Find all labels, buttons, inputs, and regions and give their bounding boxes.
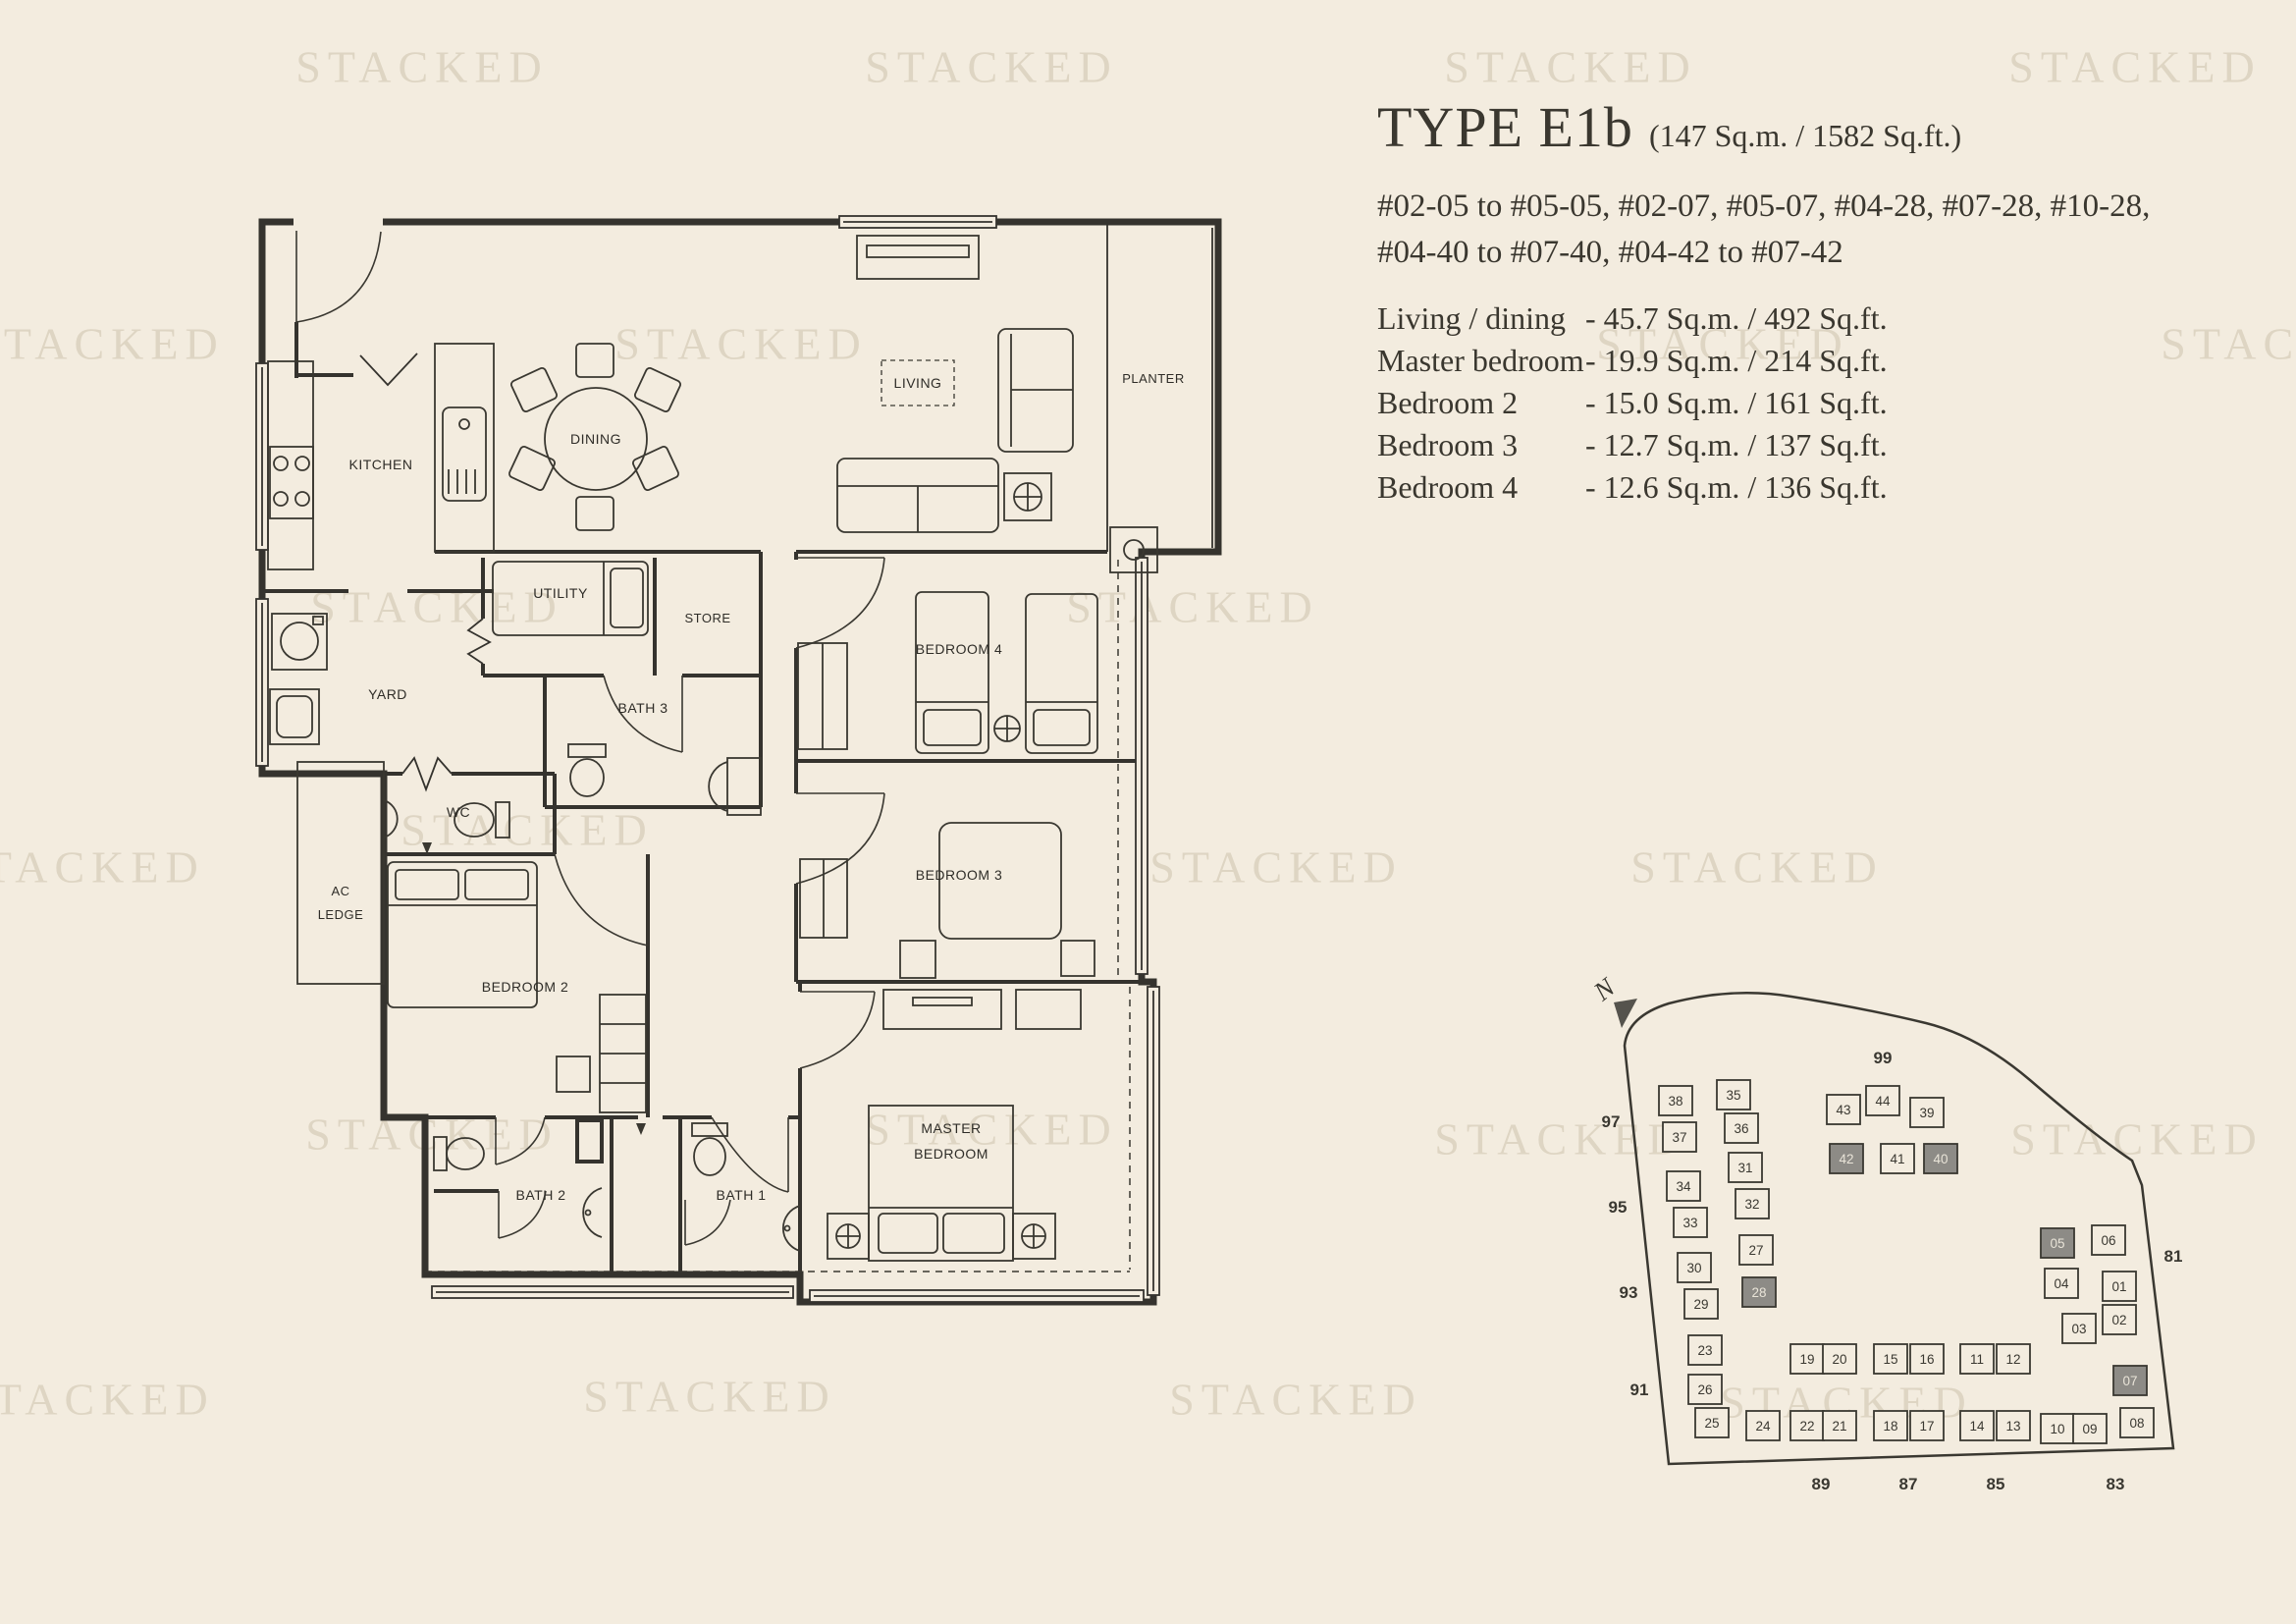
svg-text:30: 30 bbox=[1686, 1261, 1701, 1275]
street-number: 95 bbox=[1609, 1198, 1628, 1217]
watermark: STACKED bbox=[295, 41, 548, 93]
watermark: STACKED bbox=[1444, 41, 1696, 93]
area-value: - 12.6 Sq.m. / 136 Sq.ft. bbox=[1585, 466, 1888, 509]
room-label-master-2: BEDROOM bbox=[914, 1146, 988, 1162]
svg-text:21: 21 bbox=[1832, 1419, 1846, 1434]
area-value: - 45.7 Sq.m. / 492 Sq.ft. bbox=[1585, 298, 1888, 340]
site-map-building-04: 04 bbox=[2045, 1269, 2078, 1298]
site-map-building-34: 34 bbox=[1667, 1171, 1700, 1201]
area-value: - 19.9 Sq.m. / 214 Sq.ft. bbox=[1585, 340, 1888, 382]
room-label-dining: DINING bbox=[570, 431, 621, 447]
site-map-building-05: 05 bbox=[2041, 1228, 2074, 1258]
area-table: Living / dining - 45.7 Sq.m. / 492 Sq.ft… bbox=[1377, 298, 1888, 509]
room-label-planter: PLANTER bbox=[1122, 371, 1184, 386]
site-map-building-20: 20 bbox=[1823, 1344, 1856, 1374]
site-map-building-14: 14 bbox=[1960, 1411, 1994, 1440]
area-row: Bedroom 2 - 15.0 Sq.m. / 161 Sq.ft. bbox=[1377, 382, 1888, 424]
street-number: 91 bbox=[1630, 1380, 1649, 1399]
watermark: STACKED bbox=[1169, 1374, 1421, 1426]
street-number: 87 bbox=[1899, 1475, 1918, 1493]
area-label: Bedroom 2 bbox=[1377, 382, 1585, 424]
area-label: Bedroom 3 bbox=[1377, 424, 1585, 466]
area-value: - 12.7 Sq.m. / 137 Sq.ft. bbox=[1585, 424, 1888, 466]
site-map-building-06: 06 bbox=[2092, 1225, 2125, 1255]
site-map-building-03: 03 bbox=[2062, 1314, 2096, 1343]
area-row: Master bedroom - 19.9 Sq.m. / 214 Sq.ft. bbox=[1377, 340, 1888, 382]
watermark: STACKED bbox=[865, 41, 1117, 93]
site-map-building-09: 09 bbox=[2073, 1414, 2107, 1443]
site-map-building-43: 43 bbox=[1827, 1095, 1860, 1124]
site-map-building-25: 25 bbox=[1695, 1408, 1729, 1437]
floor-plan: KITCHEN DINING LIVING PLANTER UTILITY ST… bbox=[250, 206, 1242, 1326]
street-number: 93 bbox=[1620, 1283, 1638, 1302]
svg-text:15: 15 bbox=[1883, 1352, 1897, 1367]
living-furniture bbox=[837, 236, 1073, 532]
site-map-building-10: 10 bbox=[2041, 1414, 2074, 1443]
svg-text:25: 25 bbox=[1704, 1416, 1719, 1431]
site-map-building-16: 16 bbox=[1910, 1344, 1944, 1374]
site-map-building-30: 30 bbox=[1678, 1253, 1711, 1282]
svg-text:33: 33 bbox=[1682, 1216, 1697, 1230]
site-map-building-15: 15 bbox=[1874, 1344, 1907, 1374]
svg-text:02: 02 bbox=[2111, 1313, 2126, 1327]
area-label: Bedroom 4 bbox=[1377, 466, 1585, 509]
svg-text:20: 20 bbox=[1832, 1352, 1846, 1367]
watermark: STACKED bbox=[0, 1374, 215, 1426]
north-label: N bbox=[1587, 971, 1622, 1007]
svg-text:35: 35 bbox=[1726, 1088, 1740, 1103]
area-label: Master bedroom bbox=[1377, 340, 1585, 382]
site-map-building-13: 13 bbox=[1997, 1411, 2030, 1440]
svg-text:27: 27 bbox=[1748, 1243, 1763, 1258]
svg-text:22: 22 bbox=[1799, 1419, 1814, 1434]
site-map-building-18: 18 bbox=[1874, 1411, 1907, 1440]
site-map-building-37: 37 bbox=[1663, 1122, 1696, 1152]
page-title: TYPE E1b bbox=[1377, 95, 1633, 159]
area-row: Living / dining - 45.7 Sq.m. / 492 Sq.ft… bbox=[1377, 298, 1888, 340]
area-row: Bedroom 3 - 12.7 Sq.m. / 137 Sq.ft. bbox=[1377, 424, 1888, 466]
title-area: (147 Sq.m. / 1582 Sq.ft.) bbox=[1649, 118, 1961, 153]
site-buildings: 3835373634313332302729282326254344394241… bbox=[1659, 1080, 2154, 1443]
room-label-bedroom3: BEDROOM 3 bbox=[916, 867, 1003, 883]
svg-text:13: 13 bbox=[2005, 1419, 2020, 1434]
site-map-building-12: 12 bbox=[1997, 1344, 2030, 1374]
room-label-ac-ledge-1: AC bbox=[331, 884, 349, 898]
area-value: - 15.0 Sq.m. / 161 Sq.ft. bbox=[1585, 382, 1888, 424]
site-map-building-39: 39 bbox=[1910, 1098, 1944, 1127]
watermark: STACKED bbox=[1630, 841, 1883, 893]
room-label-master-1: MASTER bbox=[921, 1120, 981, 1136]
watermark: STACKED bbox=[2008, 41, 2261, 93]
svg-text:04: 04 bbox=[2054, 1276, 2069, 1291]
site-map-building-40: 40 bbox=[1924, 1144, 1957, 1173]
svg-text:08: 08 bbox=[2129, 1416, 2144, 1431]
site-map-building-44: 44 bbox=[1866, 1086, 1899, 1115]
svg-text:24: 24 bbox=[1755, 1419, 1771, 1434]
svg-text:18: 18 bbox=[1883, 1419, 1897, 1434]
room-label-kitchen: KITCHEN bbox=[349, 457, 413, 472]
svg-text:39: 39 bbox=[1919, 1106, 1934, 1120]
site-map-building-41: 41 bbox=[1881, 1144, 1914, 1173]
svg-text:32: 32 bbox=[1744, 1197, 1759, 1212]
svg-text:16: 16 bbox=[1919, 1352, 1934, 1367]
svg-text:11: 11 bbox=[1970, 1352, 1984, 1367]
svg-text:05: 05 bbox=[2050, 1236, 2064, 1251]
bath3-fixtures bbox=[568, 744, 761, 815]
area-label: Living / dining bbox=[1377, 298, 1585, 340]
site-map-building-11: 11 bbox=[1960, 1344, 1994, 1374]
svg-text:40: 40 bbox=[1933, 1152, 1948, 1166]
info-panel: TYPE E1b(147 Sq.m. / 1582 Sq.ft.) #02-05… bbox=[1377, 94, 2290, 509]
unit-list-line2: #04-40 to #07-40, #04-42 to #07-42 bbox=[1377, 230, 2290, 276]
street-number: 85 bbox=[1987, 1475, 2005, 1493]
room-label-ac-ledge-2: LEDGE bbox=[318, 907, 364, 922]
floor-plan-labels: KITCHEN DINING LIVING PLANTER UTILITY ST… bbox=[318, 371, 1185, 1203]
site-map: N 38353736343133323027292823262543443942… bbox=[1571, 957, 2296, 1566]
yard-fixtures bbox=[270, 614, 327, 744]
site-map-building-35: 35 bbox=[1717, 1080, 1750, 1110]
page: STACKEDSTACKEDSTACKEDSTACKEDSTACKEDSTACK… bbox=[0, 0, 2296, 1624]
svg-text:19: 19 bbox=[1799, 1352, 1814, 1367]
site-map-building-28: 28 bbox=[1742, 1277, 1776, 1307]
site-map-building-31: 31 bbox=[1729, 1153, 1762, 1182]
site-map-building-07: 07 bbox=[2113, 1366, 2147, 1395]
site-map-building-22: 22 bbox=[1790, 1411, 1824, 1440]
room-label-bath2: BATH 2 bbox=[516, 1187, 566, 1203]
svg-text:41: 41 bbox=[1890, 1152, 1904, 1166]
site-map-building-24: 24 bbox=[1746, 1411, 1780, 1440]
svg-text:34: 34 bbox=[1676, 1179, 1691, 1194]
svg-text:01: 01 bbox=[2111, 1279, 2126, 1294]
site-map-building-32: 32 bbox=[1735, 1189, 1769, 1218]
svg-text:12: 12 bbox=[2005, 1352, 2020, 1367]
svg-text:14: 14 bbox=[1969, 1419, 1985, 1434]
street-number: 81 bbox=[2164, 1247, 2183, 1266]
unit-list: #02-05 to #05-05, #02-07, #05-07, #04-28… bbox=[1377, 184, 2290, 276]
svg-text:26: 26 bbox=[1697, 1382, 1712, 1397]
svg-text:10: 10 bbox=[2050, 1422, 2064, 1436]
svg-text:42: 42 bbox=[1839, 1152, 1853, 1166]
site-map-building-26: 26 bbox=[1688, 1375, 1722, 1404]
room-label-wc: WC bbox=[447, 804, 470, 820]
room-label-bedroom4: BEDROOM 4 bbox=[916, 641, 1003, 657]
svg-text:17: 17 bbox=[1919, 1419, 1934, 1434]
room-label-bath1: BATH 1 bbox=[717, 1187, 767, 1203]
watermark: STACKED bbox=[0, 841, 205, 893]
bedroom3-furniture bbox=[800, 823, 1095, 978]
svg-text:38: 38 bbox=[1668, 1094, 1682, 1109]
svg-text:07: 07 bbox=[2122, 1374, 2137, 1388]
bedroom4-furniture bbox=[798, 592, 1097, 753]
svg-text:06: 06 bbox=[2101, 1233, 2115, 1248]
svg-text:03: 03 bbox=[2071, 1322, 2086, 1336]
svg-text:43: 43 bbox=[1836, 1103, 1850, 1117]
street-number: 89 bbox=[1812, 1475, 1831, 1493]
unit-list-line1: #02-05 to #05-05, #02-07, #05-07, #04-28… bbox=[1377, 184, 2290, 230]
room-label-living: LIVING bbox=[894, 375, 942, 391]
site-map-building-01: 01 bbox=[2103, 1272, 2136, 1301]
svg-text:23: 23 bbox=[1697, 1343, 1712, 1358]
area-row: Bedroom 4 - 12.6 Sq.m. / 136 Sq.ft. bbox=[1377, 466, 1888, 509]
site-map-building-02: 02 bbox=[2103, 1305, 2136, 1334]
room-label-bedroom2: BEDROOM 2 bbox=[482, 979, 569, 995]
svg-text:37: 37 bbox=[1672, 1130, 1686, 1145]
site-map-building-19: 19 bbox=[1790, 1344, 1824, 1374]
room-label-utility: UTILITY bbox=[533, 585, 588, 601]
site-map-building-21: 21 bbox=[1823, 1411, 1856, 1440]
room-label-yard: YARD bbox=[368, 686, 407, 702]
svg-text:29: 29 bbox=[1693, 1297, 1708, 1312]
ac-ledge bbox=[297, 762, 384, 984]
site-map-building-27: 27 bbox=[1739, 1235, 1773, 1265]
svg-text:36: 36 bbox=[1734, 1121, 1748, 1136]
floor-plan-dashed-lines bbox=[425, 560, 1130, 1272]
site-map-building-33: 33 bbox=[1674, 1208, 1707, 1237]
svg-text:44: 44 bbox=[1875, 1094, 1891, 1109]
svg-text:28: 28 bbox=[1751, 1285, 1766, 1300]
svg-text:09: 09 bbox=[2082, 1422, 2097, 1436]
site-map-building-42: 42 bbox=[1830, 1144, 1863, 1173]
site-map-building-23: 23 bbox=[1688, 1335, 1722, 1365]
room-label-store: STORE bbox=[684, 611, 730, 625]
room-label-bath3: BATH 3 bbox=[618, 700, 668, 716]
watermark: STACKED bbox=[583, 1371, 835, 1423]
street-number: 99 bbox=[1874, 1049, 1893, 1067]
svg-text:31: 31 bbox=[1737, 1161, 1752, 1175]
north-indicator: N bbox=[1587, 971, 1637, 1028]
site-map-building-29: 29 bbox=[1684, 1289, 1718, 1319]
street-number: 83 bbox=[2107, 1475, 2125, 1493]
site-map-building-36: 36 bbox=[1725, 1113, 1758, 1143]
site-map-building-17: 17 bbox=[1910, 1411, 1944, 1440]
site-map-building-38: 38 bbox=[1659, 1086, 1692, 1115]
site-map-building-08: 08 bbox=[2120, 1408, 2154, 1437]
street-number: 97 bbox=[1602, 1112, 1621, 1131]
watermark: STACKED bbox=[0, 318, 225, 370]
